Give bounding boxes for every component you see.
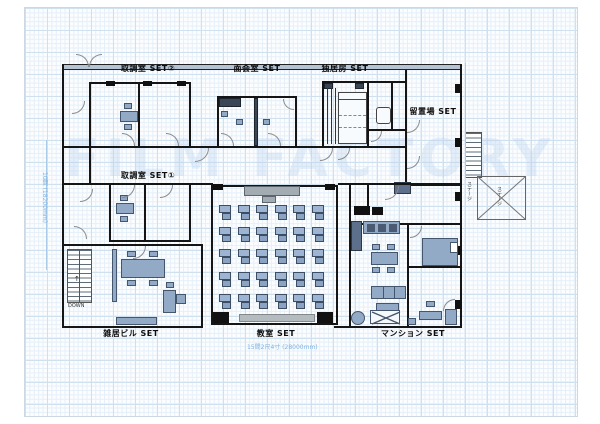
round-table bbox=[351, 311, 365, 325]
classroom-desks bbox=[219, 205, 337, 317]
bed bbox=[422, 238, 458, 266]
exterior-staircase bbox=[465, 132, 482, 178]
student-desk bbox=[238, 272, 250, 280]
student-chair bbox=[241, 280, 250, 287]
student-chair bbox=[259, 213, 268, 220]
kitchen-stove bbox=[363, 221, 400, 234]
student-desk bbox=[256, 294, 268, 302]
blackboard bbox=[244, 186, 300, 196]
student-chair bbox=[315, 213, 324, 220]
student-desk bbox=[312, 227, 324, 235]
door-arc bbox=[385, 186, 399, 200]
door-arc bbox=[371, 131, 382, 142]
door-arc bbox=[283, 99, 294, 110]
chair bbox=[124, 124, 132, 130]
student-desk bbox=[275, 205, 287, 213]
student-chair bbox=[259, 257, 268, 264]
shelf-partition bbox=[112, 249, 117, 302]
student-chair bbox=[259, 235, 268, 242]
chair bbox=[387, 267, 395, 273]
door-arc bbox=[338, 148, 350, 160]
student-desk bbox=[275, 227, 287, 235]
wall bbox=[62, 326, 203, 328]
entry-cabinet bbox=[372, 207, 383, 215]
camera bbox=[355, 83, 364, 89]
room-label: 取調室 SET① bbox=[121, 172, 175, 180]
room-label: 独居房 SET bbox=[322, 65, 369, 73]
student-chair bbox=[296, 213, 305, 220]
student-desk bbox=[293, 205, 305, 213]
chair bbox=[127, 251, 136, 257]
chair bbox=[372, 244, 380, 250]
student-chair bbox=[241, 302, 250, 309]
student-desk bbox=[275, 272, 287, 280]
student-desk bbox=[256, 272, 268, 280]
student-desk bbox=[219, 227, 231, 235]
chair bbox=[127, 280, 136, 286]
student-chair bbox=[296, 280, 305, 287]
student-chair bbox=[315, 257, 324, 264]
height-dimension: 10間 (18200mm) bbox=[41, 172, 47, 223]
counter bbox=[219, 98, 241, 107]
student-chair bbox=[222, 302, 231, 309]
chair bbox=[387, 244, 395, 250]
floor-plan: FILM FACTORY 取調室 SET② 面会室 SET bbox=[0, 0, 600, 424]
lintel bbox=[177, 81, 186, 86]
door-arc bbox=[89, 54, 102, 67]
door-arc bbox=[195, 148, 209, 162]
student-desk bbox=[238, 227, 250, 235]
sofa bbox=[371, 286, 406, 299]
chair bbox=[221, 111, 228, 117]
shelf bbox=[445, 309, 457, 325]
desk bbox=[419, 311, 442, 320]
stool bbox=[408, 318, 416, 325]
corner-block bbox=[213, 184, 223, 190]
student-desk bbox=[256, 205, 268, 213]
student-chair bbox=[278, 280, 287, 287]
side-desk bbox=[176, 294, 186, 304]
room-label: 面会室 SET bbox=[234, 65, 281, 73]
student-chair bbox=[222, 257, 231, 264]
width-dimension: 15間2尺4寸 (28000mm) bbox=[247, 345, 318, 351]
student-chair bbox=[278, 302, 287, 309]
stair-arrow: ↑ bbox=[74, 276, 80, 283]
lintel bbox=[143, 81, 152, 86]
chair bbox=[124, 103, 132, 109]
student-desk bbox=[238, 249, 250, 257]
wall bbox=[62, 183, 111, 185]
low-table bbox=[370, 310, 400, 324]
room-label: マンション SET bbox=[381, 330, 445, 338]
chair bbox=[426, 301, 435, 307]
door-arc bbox=[160, 185, 173, 198]
chair bbox=[120, 216, 128, 222]
chair bbox=[149, 280, 158, 286]
student-desk bbox=[312, 272, 324, 280]
student-chair bbox=[315, 280, 324, 287]
student-chair bbox=[241, 213, 250, 220]
wall bbox=[334, 326, 462, 328]
student-desk bbox=[293, 249, 305, 257]
door-arc bbox=[407, 156, 420, 169]
desk bbox=[116, 203, 134, 214]
student-chair bbox=[278, 235, 287, 242]
door-arc bbox=[76, 54, 89, 67]
wall bbox=[62, 64, 64, 328]
student-chair bbox=[222, 235, 231, 242]
student-desk bbox=[256, 227, 268, 235]
student-chair bbox=[315, 302, 324, 309]
stairs-down-label: DOWN bbox=[68, 304, 84, 309]
cell-bars bbox=[335, 88, 336, 144]
student-desk bbox=[256, 249, 268, 257]
stage-note: ステージ bbox=[496, 186, 501, 206]
door-arc bbox=[407, 120, 420, 133]
chair bbox=[263, 119, 270, 125]
door-arc bbox=[80, 189, 93, 202]
student-chair bbox=[241, 257, 250, 264]
lintel bbox=[106, 81, 115, 86]
chair bbox=[372, 267, 380, 273]
door-arc bbox=[74, 226, 87, 239]
student-desk bbox=[275, 249, 287, 257]
column bbox=[455, 300, 461, 309]
student-desk bbox=[238, 294, 250, 302]
chair bbox=[149, 251, 158, 257]
dining-table bbox=[371, 252, 398, 265]
door-arc bbox=[122, 133, 135, 146]
room-label: 留置場 SET bbox=[410, 108, 457, 116]
column bbox=[455, 192, 461, 201]
floorplan-page: { "sheet": { "watermark": "FILM FACTORY"… bbox=[0, 0, 600, 424]
door-arc bbox=[72, 101, 85, 114]
l-desk bbox=[163, 290, 176, 313]
student-desk bbox=[312, 205, 324, 213]
student-desk bbox=[312, 249, 324, 257]
room-label: 取調室 SET② bbox=[121, 65, 175, 73]
counter bbox=[116, 317, 157, 325]
student-desk bbox=[293, 294, 305, 302]
desk bbox=[120, 111, 138, 122]
door-arc bbox=[166, 133, 179, 146]
student-desk bbox=[293, 227, 305, 235]
stage-note: ステージ bbox=[466, 181, 471, 201]
teacher-podium bbox=[262, 196, 276, 203]
student-desk bbox=[219, 249, 231, 257]
toilet bbox=[376, 107, 391, 124]
chair bbox=[166, 282, 174, 288]
cell-bars bbox=[331, 88, 332, 144]
wall bbox=[189, 183, 213, 185]
door-arc bbox=[122, 185, 135, 198]
wall bbox=[62, 146, 91, 148]
student-desk bbox=[238, 205, 250, 213]
column bbox=[455, 138, 461, 147]
partition-divider bbox=[254, 98, 258, 146]
student-chair bbox=[259, 302, 268, 309]
door-arc bbox=[221, 133, 234, 146]
kitchen-counter bbox=[351, 221, 362, 251]
student-chair bbox=[296, 257, 305, 264]
door-arc bbox=[410, 226, 422, 238]
student-desk bbox=[219, 294, 231, 302]
room-label: 雑居ビル SET bbox=[103, 330, 158, 338]
student-chair bbox=[296, 302, 305, 309]
conference-table bbox=[121, 259, 165, 278]
corner-block bbox=[325, 184, 335, 190]
dimension-line bbox=[465, 63, 466, 178]
student-chair bbox=[222, 213, 231, 220]
wall bbox=[89, 146, 91, 185]
student-chair bbox=[241, 235, 250, 242]
student-desk bbox=[219, 272, 231, 280]
cell-bars bbox=[327, 88, 328, 144]
entry-cabinet bbox=[354, 206, 370, 215]
student-desk bbox=[293, 272, 305, 280]
student-chair bbox=[315, 235, 324, 242]
chair bbox=[236, 119, 243, 125]
door-arc bbox=[268, 133, 281, 146]
student-desk bbox=[312, 294, 324, 302]
student-chair bbox=[278, 257, 287, 264]
door-arc bbox=[320, 148, 333, 161]
student-chair bbox=[222, 280, 231, 287]
cell-futon bbox=[338, 92, 367, 144]
student-desk bbox=[219, 205, 231, 213]
room-label: 教室 SET bbox=[257, 330, 295, 338]
student-desk bbox=[275, 294, 287, 302]
column bbox=[455, 84, 461, 93]
student-chair bbox=[278, 213, 287, 220]
student-chair bbox=[296, 235, 305, 242]
student-chair bbox=[259, 280, 268, 287]
